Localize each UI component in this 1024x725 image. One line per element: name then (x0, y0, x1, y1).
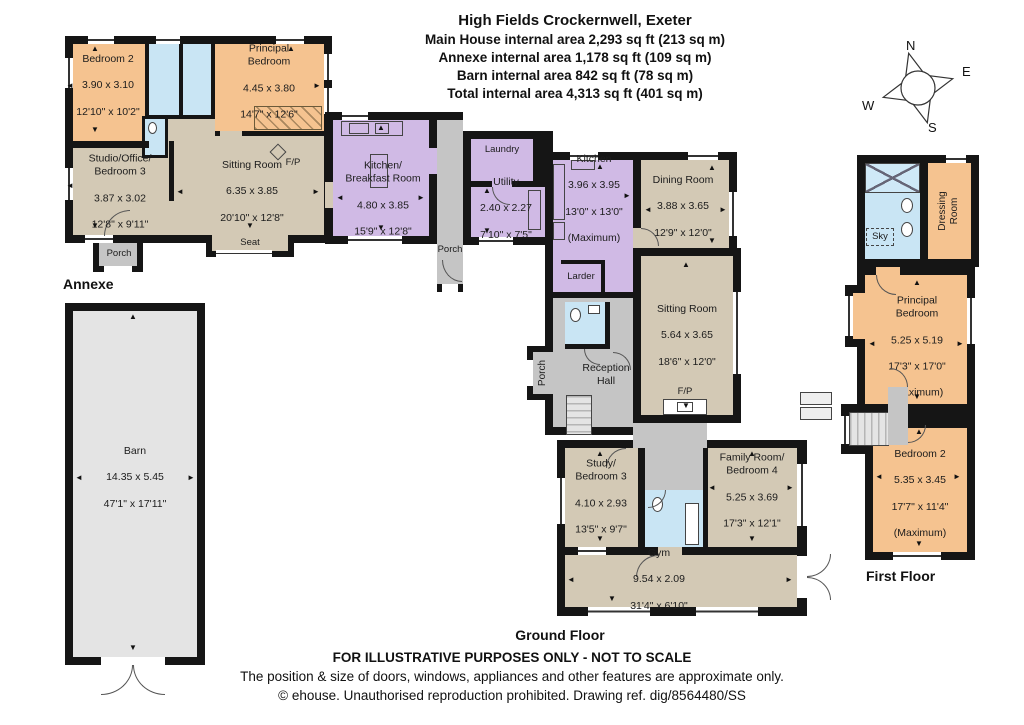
room-metric: 3.88 x 3.65 (653, 200, 714, 213)
door-opening (104, 266, 132, 272)
window (557, 478, 565, 524)
room-metric: 4.80 x 3.85 (345, 199, 420, 212)
wall (561, 260, 605, 264)
laundry-text: Laundry (485, 144, 519, 156)
sitting-fp-label: F/P (678, 386, 693, 398)
first-floor-label: First Floor (866, 568, 935, 584)
dim-arrow-icon: ◄ (875, 473, 883, 481)
dim-arrow-icon: ▲ (915, 428, 923, 436)
room-label-annexe-bedroom2: Bedroom 2 3.90 x 3.10 12'10" x 10'2" (76, 40, 139, 132)
room-metric: 4.10 x 2.93 (575, 497, 627, 510)
window-bay (853, 293, 865, 339)
window (845, 296, 853, 336)
window (946, 155, 966, 163)
window (342, 112, 368, 120)
dim-arrow-icon: ► (187, 474, 195, 482)
floorplan-page: High Fields Crockernwell, Exeter Main Ho… (0, 0, 1024, 725)
reception-hall-label: Reception Hall (582, 362, 629, 388)
fp-text: F/P (286, 157, 301, 169)
dim-arrow-icon: ◄ (868, 340, 876, 348)
french-door-arc (807, 554, 831, 577)
room-name: Kitchen (565, 153, 623, 166)
dim-arrow-icon: ▲ (377, 124, 385, 132)
dim-arrow-icon: ► (623, 192, 631, 200)
copyright-line: © ehouse. Unauthorised reproduction proh… (0, 688, 1024, 703)
room-label-sitting: Sitting Room 5.64 x 3.65 18'6" x 12'0" (657, 290, 717, 382)
dim-arrow-icon: ▼ (913, 393, 921, 401)
dim-arrow-icon: ► (719, 206, 727, 214)
room-label-barn: Barn 14.35 x 5.45 47'1" x 17'11" (104, 432, 167, 524)
room-label-kitchen: Kitchen 3.96 x 3.95 13'0" x 13'0" (Maxim… (565, 140, 623, 258)
compass-north: N (906, 38, 915, 53)
room-name: Sitting Room (657, 303, 717, 316)
dim-arrow-icon: ▼ (596, 535, 604, 543)
room-name: Barn (104, 445, 167, 458)
door-opening (442, 284, 458, 292)
dim-arrow-icon: ◄ (66, 182, 74, 190)
dim-arrow-icon: ▲ (483, 187, 491, 195)
room-label-gym: Gym 9.54 x 2.09 31'4" x 6'10" (630, 534, 688, 626)
sky-text: Sky (872, 231, 888, 243)
room-imperial: 17'7" x 11'4" (892, 501, 949, 514)
door-gap (633, 228, 641, 248)
room-metric: 5.25 x 5.19 (888, 334, 946, 347)
dim-arrow-icon: ▲ (913, 279, 921, 287)
laundry-label: Laundry (485, 144, 519, 156)
wall (437, 112, 463, 120)
disclaimer-line1: FOR ILLUSTRATIVE PURPOSES ONLY - NOT TO … (0, 650, 1024, 665)
room-imperial: 17'3" x 12'1" (720, 517, 785, 530)
stairs (566, 395, 592, 435)
window (841, 416, 849, 444)
window (893, 552, 941, 560)
skylight-label: Sky (872, 231, 888, 243)
dim-arrow-icon: ▲ (129, 313, 137, 321)
compass-south: S (928, 120, 937, 135)
room-metric: 2.40 x 2.27 (480, 202, 532, 215)
room-name: Principal Bedroom (888, 295, 946, 321)
dim-arrow-icon: ► (956, 340, 964, 348)
dim-arrow-icon: ▼ (682, 402, 690, 410)
dim-arrow-icon: ▲ (287, 45, 295, 53)
front-porch-label: Porch (537, 360, 549, 386)
window (324, 54, 332, 80)
room-imperial: 47'1" x 17'11" (104, 498, 167, 511)
porch-text: Porch (438, 244, 463, 256)
garden-step (800, 407, 832, 420)
dim-arrow-icon: ▲ (748, 450, 756, 458)
cooker-icon (553, 222, 565, 240)
room-metric: 6.35 x 3.85 (220, 185, 283, 198)
annexe-porch-label: Porch (107, 248, 132, 260)
room-imperial: 18'6" x 12'0" (657, 356, 717, 369)
wall (703, 490, 708, 547)
window (967, 298, 975, 344)
dim-arrow-icon: ◄ (644, 206, 652, 214)
window (729, 192, 737, 236)
room-name: Kitchen/ Breakfast Room (345, 160, 420, 186)
dim-arrow-icon: ◄ (336, 194, 344, 202)
page-title: High Fields Crockernwell, Exeter (330, 12, 820, 29)
room-name: Bedroom 2 (76, 53, 139, 66)
door-opening (797, 556, 807, 598)
kitchen-counter (553, 164, 565, 220)
room-metric: 3.96 x 3.95 (565, 179, 623, 192)
dim-arrow-icon: ▲ (91, 45, 99, 53)
room-metric: 5.64 x 3.65 (657, 329, 717, 342)
room-note: (Maximum) (565, 232, 623, 245)
dim-arrow-icon: ► (417, 194, 425, 202)
stairs (849, 412, 889, 446)
room-note: (Maximum) (892, 527, 949, 540)
window (156, 36, 180, 44)
dim-arrow-icon: ▲ (682, 261, 690, 269)
dim-arrow-icon: ▲ (596, 450, 604, 458)
dim-arrow-icon: ▼ (608, 595, 616, 603)
room-name: Dining Room (653, 174, 714, 187)
room-imperial: 14'7" x 12'6" (240, 108, 298, 121)
wall (179, 44, 183, 115)
room-metric: 3.87 x 3.02 (89, 192, 152, 205)
room-metric: 14.35 x 5.45 (104, 471, 167, 484)
door-gap (429, 148, 437, 174)
room-name: Study/ Bedroom 3 (575, 458, 627, 484)
room-name: Gym (630, 547, 688, 560)
compass-west: W (862, 98, 875, 113)
dim-arrow-icon: ▼ (748, 535, 756, 543)
porch-text: Porch (107, 248, 132, 260)
dim-arrow-icon: ▼ (246, 222, 254, 230)
dim-arrow-icon: ► (953, 473, 961, 481)
dim-arrow-icon: ▼ (708, 237, 716, 245)
room-metric: 9.54 x 2.09 (630, 573, 688, 586)
seat-text: Seat (240, 237, 260, 249)
dim-arrow-icon: ◄ (567, 576, 575, 584)
door-opening (527, 360, 533, 386)
door-gap (220, 131, 242, 136)
larder-text: Larder (567, 271, 594, 283)
dim-arrow-icon: ▼ (377, 224, 385, 232)
hall-connector (641, 440, 703, 490)
reception-text: Reception Hall (582, 362, 629, 388)
dim-arrow-icon: ► (786, 484, 794, 492)
room-imperial: 31'4" x 6'10" (630, 600, 688, 613)
area-main-house: Main House internal area 2,293 sq ft (21… (330, 31, 820, 49)
dim-arrow-icon: ▲ (708, 164, 716, 172)
room-label-ff-bedroom2: Bedroom 2 5.35 x 3.45 17'7" x 11'4" (Max… (892, 435, 949, 553)
ground-floor-label: Ground Floor (490, 627, 630, 643)
room-metric: 4.45 x 3.80 (240, 82, 298, 95)
dim-arrow-icon: ◄ (66, 82, 74, 90)
area-annexe: Annexe internal area 1,178 sq ft (109 sq… (330, 49, 820, 67)
link-porch-label: Porch (438, 244, 463, 256)
dim-arrow-icon: ► (785, 576, 793, 584)
dressing-text: Dressing Room (937, 191, 960, 230)
larder-label: Larder (567, 271, 594, 283)
porch-text: Porch (537, 360, 548, 386)
dim-arrow-icon: ▼ (915, 540, 923, 548)
disclaimer-line2: The position & size of doors, windows, a… (0, 669, 1024, 684)
dim-arrow-icon: ► (313, 82, 321, 90)
room-imperial: 12'10" x 10'2" (76, 106, 139, 119)
room-metric: 3.90 x 3.10 (76, 79, 139, 92)
dim-arrow-icon: ▼ (483, 227, 491, 235)
wall (920, 163, 928, 259)
dressing-room-label: Dressing Room (937, 191, 961, 230)
room-imperial: 12'9" x 12'0" (653, 227, 714, 240)
room-label-utility: Utility 2.40 x 2.27 7'10" x 7'5" (480, 163, 532, 255)
room-imperial: 13'0" x 13'0" (565, 206, 623, 219)
door-gap (876, 267, 900, 275)
window (216, 250, 272, 257)
toilet-icon (148, 122, 157, 134)
seat-label: Seat (240, 237, 260, 249)
window (696, 607, 758, 616)
garden-step (800, 392, 832, 405)
window (733, 292, 741, 374)
door-gap (325, 182, 333, 208)
wall (605, 302, 610, 344)
window (797, 464, 807, 526)
compass-rose: N E W S (856, 28, 980, 136)
french-door-arc (807, 577, 831, 600)
room-metric: 5.35 x 3.45 (892, 474, 949, 487)
dim-arrow-icon: ▼ (91, 222, 99, 230)
wall (601, 260, 605, 292)
wall (533, 139, 541, 185)
room-name: Sitting Room (220, 159, 283, 172)
dim-arrow-icon: ▼ (91, 126, 99, 134)
dim-arrow-icon: ◄ (176, 188, 184, 196)
toilet-icon (901, 198, 913, 213)
dim-arrow-icon: ◄ (708, 484, 716, 492)
window (688, 152, 718, 160)
wall (169, 141, 174, 201)
toilet-icon (901, 222, 913, 237)
window (324, 88, 332, 114)
area-barn: Barn internal area 842 sq ft (78 sq m) (330, 67, 820, 85)
compass-east: E (962, 64, 971, 79)
sink-icon (588, 305, 600, 314)
dim-arrow-icon: ► (312, 188, 320, 196)
dim-arrow-icon: ◄ (75, 474, 83, 482)
title-block: High Fields Crockernwell, Exeter Main Ho… (330, 12, 820, 103)
compass-circle (901, 71, 935, 105)
room-label-kitchen-breakfast: Kitchen/ Breakfast Room 4.80 x 3.85 15'9… (345, 147, 420, 252)
room-label-dining: Dining Room 3.88 x 3.65 12'9" x 12'0" (653, 161, 714, 253)
cooker-icon (349, 123, 369, 134)
dim-arrow-icon: ▲ (596, 163, 604, 171)
annexe-shower-room (149, 44, 179, 115)
annexe-section-label: Annexe (63, 276, 114, 292)
wall (211, 44, 215, 115)
annexe-fp-label: F/P (286, 157, 301, 169)
wall (638, 448, 645, 490)
room-metric: 5.25 x 3.69 (720, 491, 785, 504)
room-name: Studio/Office/ Bedroom 3 (89, 153, 152, 179)
area-total: Total internal area 4,313 sq ft (401 sq … (330, 85, 820, 103)
room-name: Bedroom 2 (892, 448, 949, 461)
shower-icon (865, 163, 920, 193)
fp-text: F/P (678, 386, 693, 398)
toilet-icon (570, 308, 581, 322)
